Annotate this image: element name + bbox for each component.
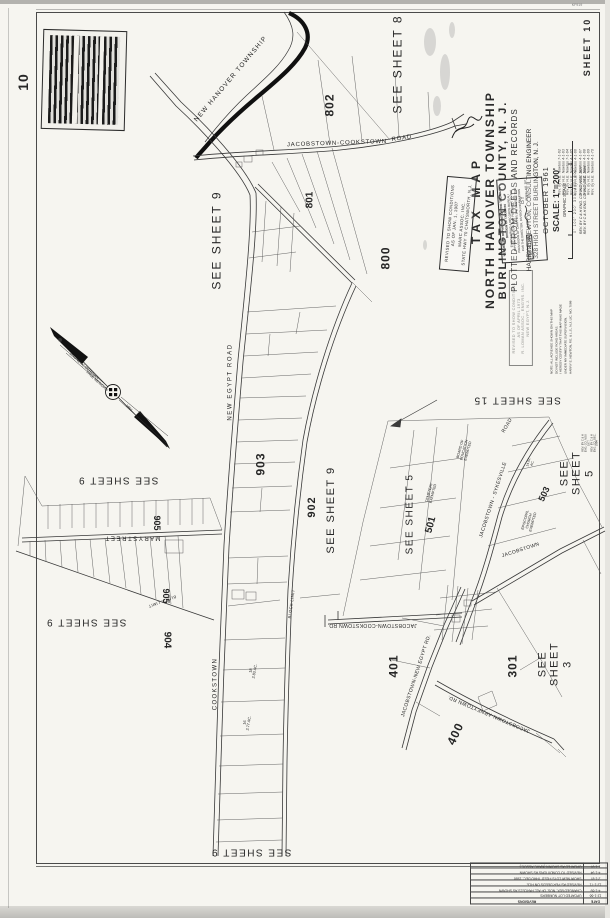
street-mary: M A R Y S T R E E T (106, 534, 161, 541)
block-902: 902 (306, 496, 318, 517)
corner-mark: KF919 (572, 3, 583, 7)
annot-board-of-education: BOARD OF EDUCATION EXEMPTED (455, 438, 472, 461)
road-jacobstown-new-egypt: JACOBSTOWN-NEW EGYPT RD. (401, 634, 433, 718)
block-800: 800 (379, 246, 392, 269)
see-sheet-3: SEE SHEET 3 (537, 637, 574, 692)
block-503: 503 (536, 485, 551, 503)
block-903: 903 (254, 452, 267, 475)
road-jacobstown-short: JACOBSTOWN (501, 542, 540, 559)
see-sheet-9-upper: SEE SHEET 9 (210, 190, 223, 289)
see-sheet-5-left: SEE SHEET 5 (404, 474, 415, 555)
margin-rev-note: REV. BY C & H ENG. CO. NOV. 1977 REV. BY… (582, 434, 599, 453)
map-label-layer: 10KF919SEE SHEET 8SEE SHEET 9SEE SHEET 9… (0, 0, 610, 918)
road-jacobstown-cookstown-mid: JACOBSTOWN-COOKSTOWN RD. (327, 621, 417, 627)
compass-label-true: TRUE MERIDIAN (85, 370, 109, 392)
tax-map-sheet: TAX MAP NORTH HANOVER TOWNSHIP BURLINGTO… (0, 0, 610, 918)
sheet-number-corner: 10 (16, 73, 32, 91)
block-401: 401 (387, 654, 400, 677)
block-301: 301 (506, 654, 519, 677)
see-sheet-9-mary-1: SEE SHEET 9 (78, 474, 159, 485)
boundary-new-hanover-township: NEW HANOVER TOWNSHIP (193, 35, 269, 124)
road-jacobstown-cookstown-word-road: ROAD (391, 134, 412, 144)
road-new-egypt: NEW EGYPT ROAD (228, 343, 235, 420)
annot-episcopal-church: EPISCOPAL CHURCH EXEMPTED (521, 510, 538, 533)
see-sheet-9-mid: SEE SHEET 9 (325, 466, 337, 553)
annot-lot16: 16 2.77 AC. (242, 715, 253, 731)
block-802: 802 (323, 93, 336, 116)
block-801: 801 (304, 192, 315, 209)
see-sheet-9-bottom: SEE SHEET 9 (211, 846, 292, 857)
road-cookstown: COOKSTOWN (213, 658, 220, 711)
road-jacobstown-sykesville: JACOBSTOWN - SYKESVILLE (479, 462, 509, 539)
block-904: 904 (161, 632, 172, 649)
road-jacobstown-cookstown: JACOBSTOWN-COOKSTOWN (287, 139, 387, 149)
see-sheet-9-mary-2: SEE SHEET 9 (46, 616, 127, 627)
see-sheet-8: SEE SHEET 8 (391, 14, 404, 113)
block-905a: 905 (152, 515, 162, 530)
block-400: 400 (445, 721, 467, 748)
road-sykesville-word-road: ROAD (502, 418, 515, 435)
block-limit-east: BLOCK LIMIT (288, 589, 297, 619)
annot-1401-ac: 14.01 AC. (526, 458, 536, 468)
see-sheet-5-right: SEE SHEET 5 (559, 451, 596, 495)
see-sheet-15: SEE SHEET 15 (473, 394, 561, 405)
block-501: 501 (423, 515, 438, 534)
annot-cemetery: CEMETERY EXEMPTED (425, 482, 438, 503)
annot-lot18: 18 2.83 AC. (248, 663, 259, 679)
compass-year: 1961 (125, 404, 134, 412)
